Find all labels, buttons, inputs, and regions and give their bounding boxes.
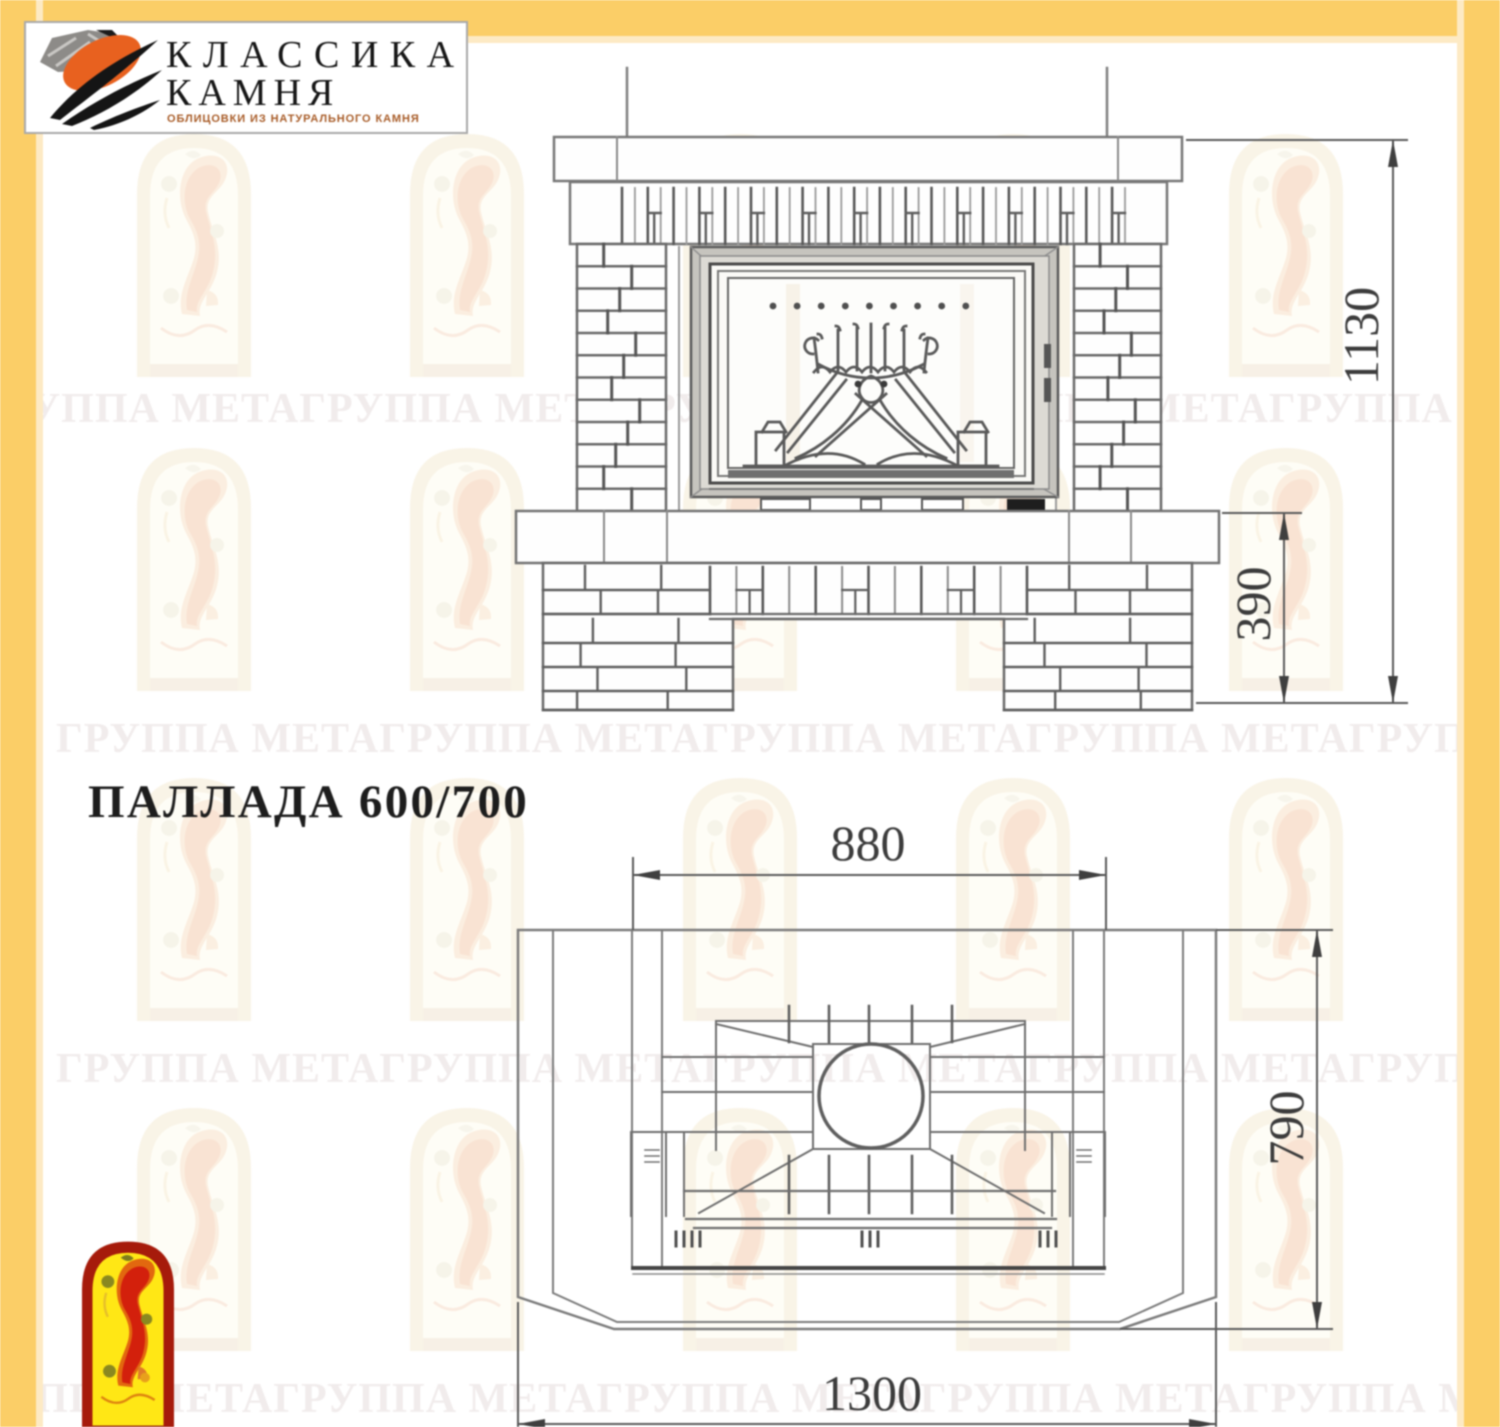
svg-text:КАМНЯ: КАМНЯ	[166, 72, 340, 114]
svg-text:ГРУППА МЕТАГРУППА МЕТАГРУППА М: ГРУППА МЕТАГРУППА МЕТАГРУППА МЕТАГРУППА …	[56, 716, 1500, 762]
svg-text:790: 790	[1258, 1091, 1314, 1166]
svg-text:ПАЛЛАДА 600/700: ПАЛЛАДА 600/700	[88, 776, 529, 828]
svg-text:1130: 1130	[1333, 287, 1389, 385]
svg-text:880: 880	[831, 815, 906, 871]
svg-text:КЛАССИКА: КЛАССИКА	[166, 34, 466, 76]
svg-text:ОБЛИЦОВКИ ИЗ НАТУРАЛЬНОГО КАМН: ОБЛИЦОВКИ ИЗ НАТУРАЛЬНОГО КАМНЯ	[167, 113, 420, 125]
svg-text:ГРУППА МЕТАГРУППА МЕТАГРУППА М: ГРУППА МЕТАГРУППА МЕТАГРУППА МЕТАГРУППА …	[56, 1046, 1500, 1092]
svg-text:390: 390	[1225, 567, 1281, 642]
svg-text:1300: 1300	[822, 1365, 922, 1421]
svg-text:ГРУППА МЕТАГРУППА МЕТАГРУППА М: ГРУППА МЕТАГРУППА МЕТАГРУППА МЕТАГРУППА …	[0, 1376, 1500, 1422]
